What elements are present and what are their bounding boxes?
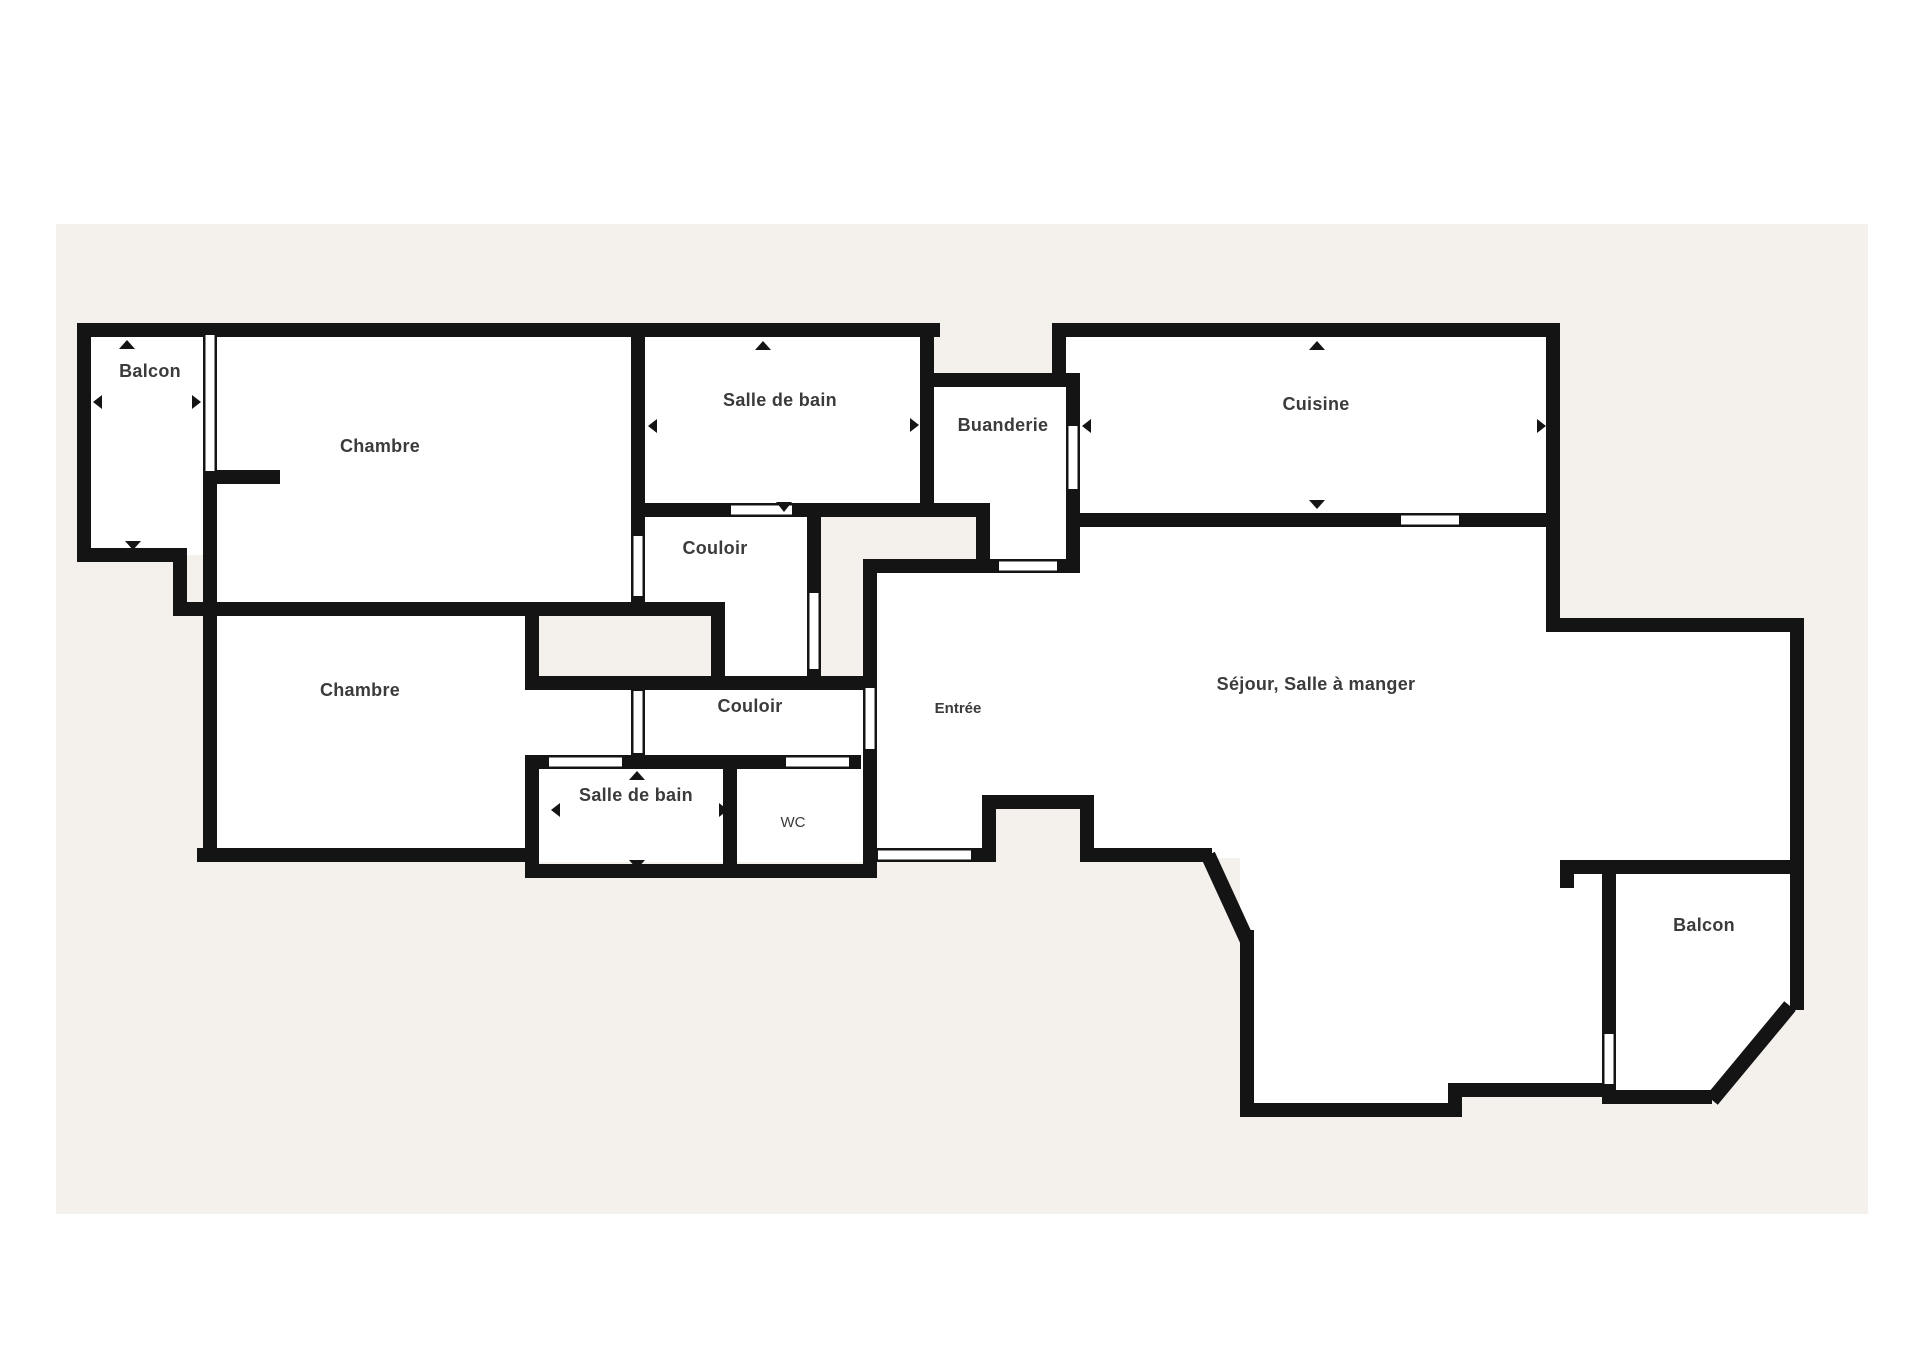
door-buanderie-cuisine bbox=[1068, 425, 1079, 490]
door-wc bbox=[785, 757, 850, 768]
room-label-couloir-top: Couloir bbox=[682, 538, 747, 558]
door-balcon-tl bbox=[205, 334, 216, 472]
recess-bottom-notch bbox=[996, 806, 1080, 862]
room-label-sdb-top: Salle de bain bbox=[723, 390, 837, 410]
wall-notch-left bbox=[982, 795, 996, 862]
floor-plan-page: Balcon Chambre Salle de bain Buanderie C… bbox=[0, 0, 1920, 1357]
wall-balcon-br-stub bbox=[1560, 860, 1574, 888]
wall-cuisine-bottom bbox=[1066, 513, 1560, 527]
wall-buanderie-step bbox=[976, 503, 990, 573]
door-chambre-couloir-bas bbox=[633, 690, 644, 754]
wall-couloir-top-edge bbox=[525, 676, 877, 690]
wall-sdb-bottom-left bbox=[525, 755, 539, 878]
wall-balcon-tl-bottom bbox=[77, 548, 187, 562]
wall-chambre-bottom bbox=[197, 848, 539, 862]
wall-balcon-tl-left bbox=[77, 323, 91, 562]
room-label-chambre-top: Chambre bbox=[340, 436, 420, 456]
sejour-bottom-lobe-right-floor bbox=[1448, 855, 1608, 1083]
sejour-bottom-lobe-floor bbox=[1240, 855, 1462, 1103]
wall-balcon-br-top bbox=[1560, 860, 1804, 874]
wall-niche-left bbox=[525, 602, 539, 690]
wall-balcon-br-bottom bbox=[1602, 1090, 1712, 1104]
door-cuisine-sejour bbox=[1400, 515, 1460, 526]
wall-niche-right bbox=[711, 602, 725, 690]
room-label-buanderie: Buanderie bbox=[958, 415, 1049, 435]
room-label-sdb-bottom: Salle de bain bbox=[579, 785, 693, 805]
door-couloir-entree bbox=[809, 592, 820, 670]
door-entree-couloir-bas bbox=[865, 687, 876, 750]
wall-balcon-step bbox=[173, 548, 187, 602]
door-chambre-top bbox=[633, 535, 644, 597]
wall-notch-top bbox=[982, 795, 1094, 809]
wall-sejour-top-right bbox=[1546, 618, 1804, 632]
room-label-couloir-bottom: Couloir bbox=[717, 696, 782, 716]
wall-left-block-right bbox=[920, 337, 934, 517]
wall-sejour-bottom bbox=[1240, 1103, 1462, 1117]
wall-cuisine-step bbox=[1052, 337, 1066, 387]
wall-cuisine-right bbox=[1546, 323, 1560, 632]
recess-niche bbox=[539, 612, 711, 678]
recess-left-leg bbox=[818, 514, 868, 684]
room-label-entree: Entrée bbox=[935, 700, 982, 717]
wall-sdb-wc-divider bbox=[723, 755, 737, 878]
room-cuisine-floor bbox=[1066, 330, 1553, 520]
wall-sejour-bottom-left bbox=[1080, 848, 1212, 862]
door-balcon-br bbox=[1604, 1033, 1615, 1085]
door-sdb-bas bbox=[548, 757, 623, 768]
door-buanderie-entree bbox=[998, 561, 1058, 572]
recess-balcon-step bbox=[187, 562, 203, 602]
door-entree-principale bbox=[877, 850, 972, 861]
sejour-right-column-floor bbox=[1553, 625, 1797, 867]
wall-step-joint bbox=[1448, 1083, 1462, 1117]
room-label-sejour: Séjour, Salle à manger bbox=[1217, 674, 1416, 694]
wall-top-cuisine bbox=[1052, 323, 1560, 337]
wall-notch-right bbox=[1080, 795, 1094, 862]
wall-chambre-bottom-left bbox=[203, 602, 217, 862]
room-label-cuisine: Cuisine bbox=[1282, 394, 1349, 414]
wall-sdb-wc-bottom bbox=[525, 864, 877, 878]
wall-sejour-bottom-step bbox=[1448, 1083, 1616, 1097]
room-label-wc: WC bbox=[781, 814, 806, 831]
room-label-balcon-tl: Balcon bbox=[119, 361, 181, 381]
room-label-balcon-br: Balcon bbox=[1673, 915, 1735, 935]
wall-sejour-right bbox=[1790, 618, 1804, 1010]
wall-sejour-lobe-left bbox=[1240, 930, 1254, 1117]
floor-plan-canvas: Balcon Chambre Salle de bain Buanderie C… bbox=[0, 0, 1920, 1357]
room-label-chambre-bottom: Chambre bbox=[320, 680, 400, 700]
